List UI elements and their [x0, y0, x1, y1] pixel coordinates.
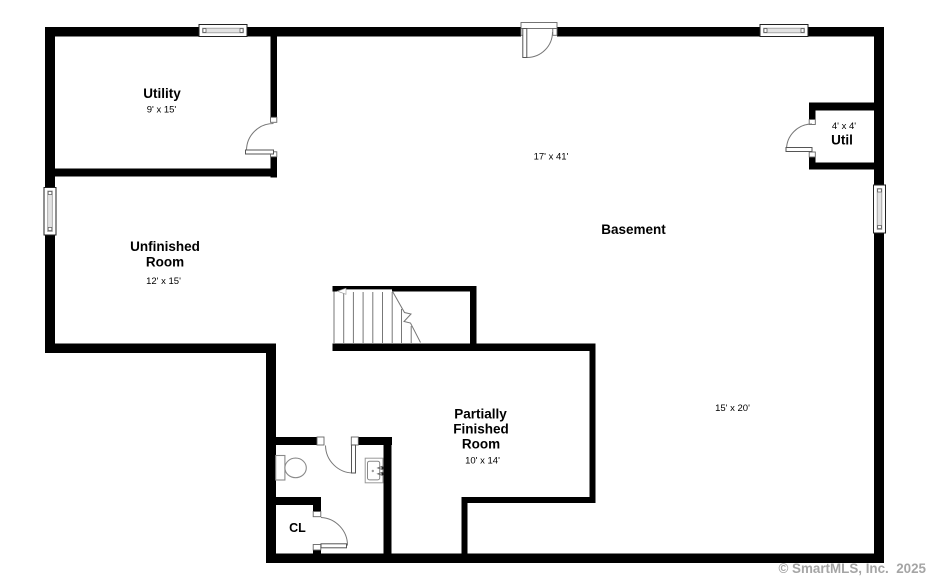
svg-text:Unfinished: Unfinished: [130, 239, 200, 254]
svg-text:Room: Room: [462, 436, 500, 451]
svg-text:Utility: Utility: [143, 86, 181, 101]
svg-text:17' x 41': 17' x 41': [534, 151, 569, 162]
svg-text:10' x 14': 10' x 14': [465, 456, 500, 467]
svg-text:15' x 20': 15' x 20': [715, 403, 750, 414]
svg-text:9' x 15': 9' x 15': [147, 104, 177, 115]
svg-text:12' x 15': 12' x 15': [146, 276, 181, 287]
svg-text:Finished: Finished: [453, 422, 509, 437]
svg-text:© SmartMLS, Inc. 2025: © SmartMLS, Inc. 2025: [778, 561, 926, 576]
svg-text:Util: Util: [831, 133, 853, 148]
svg-text:CL: CL: [289, 521, 306, 535]
svg-text:Partially: Partially: [454, 407, 507, 422]
svg-text:4' x 4': 4' x 4': [832, 121, 856, 132]
svg-text:Room: Room: [146, 254, 184, 269]
svg-text:Basement: Basement: [601, 222, 666, 237]
